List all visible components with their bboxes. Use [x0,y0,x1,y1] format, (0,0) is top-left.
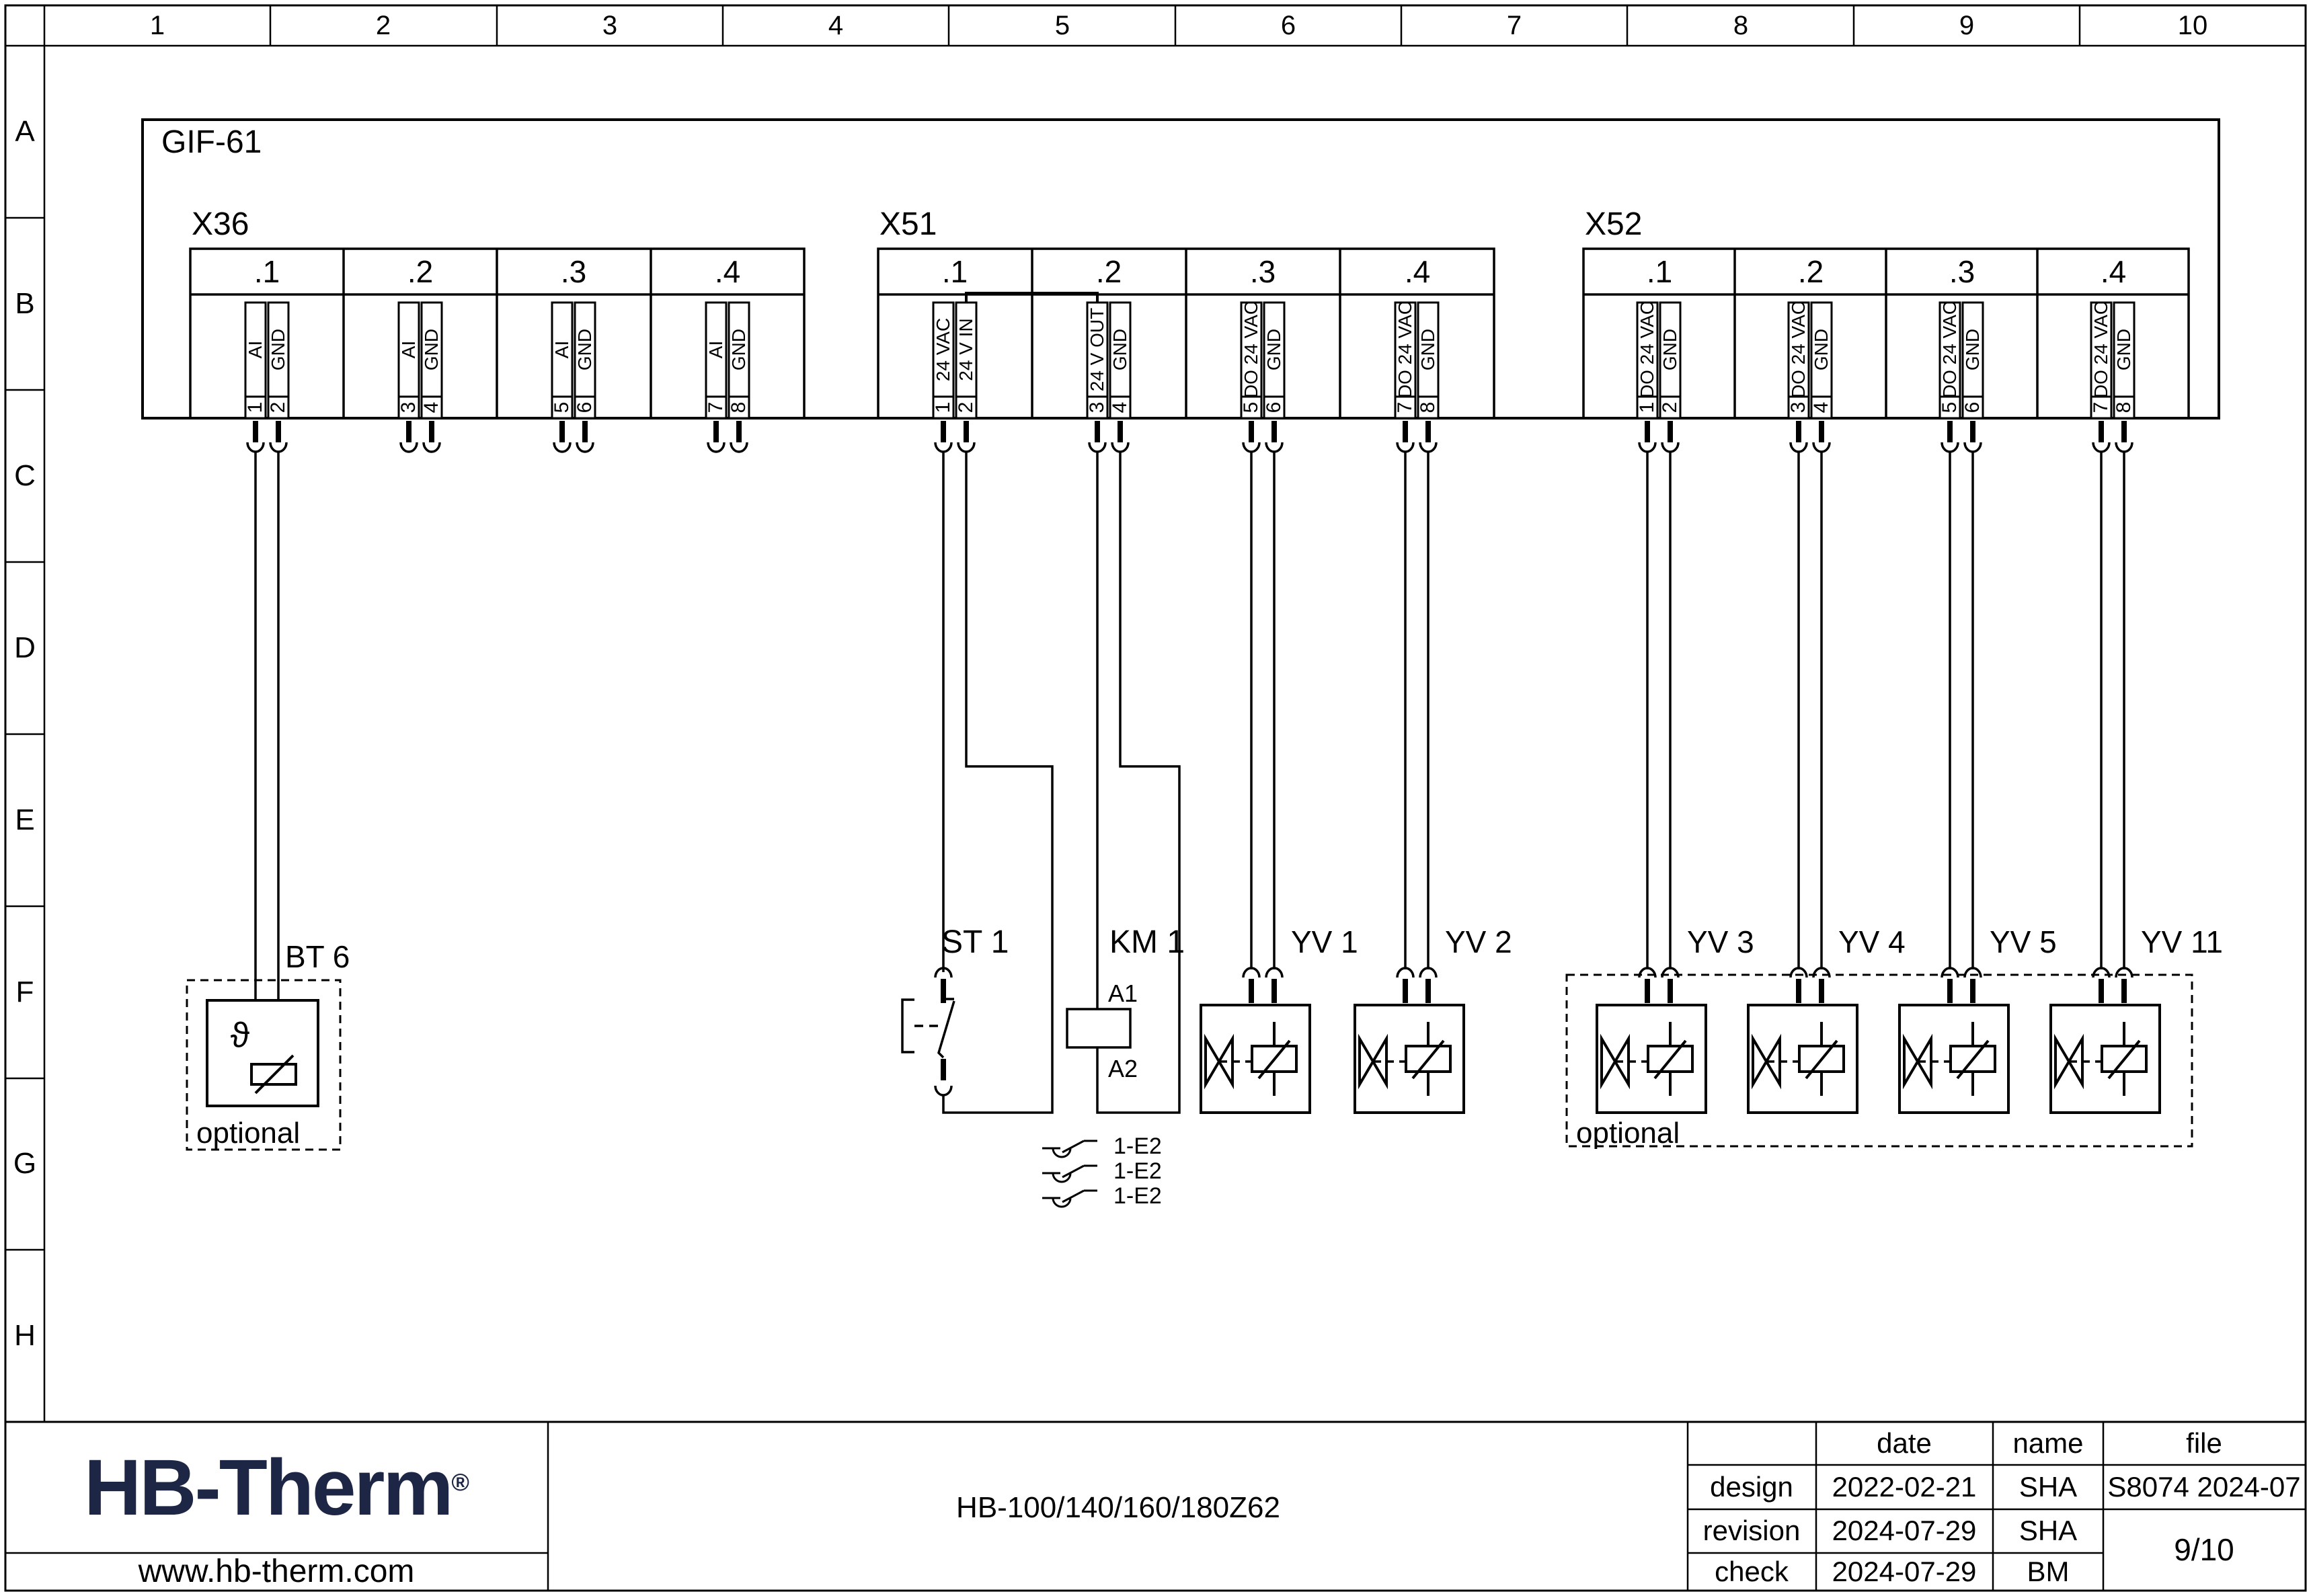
x36-pin1-name: AI [246,341,265,358]
x52-pin3-number: 3 [1789,402,1809,413]
table-header-file: file [2186,1429,2222,1458]
x36-pin7-name: AI [707,341,726,358]
row-revision-label: revision [1703,1517,1801,1545]
bt6-optional-label: optional [196,1119,300,1148]
x36-pin6-name: GND [576,329,594,370]
col-label-4: 4 [828,12,843,39]
pin-terminal-boxes [245,303,2134,418]
table-header-date: date [1877,1429,1932,1458]
yv3-label: YV 3 [1687,926,1754,957]
x52-pin1-number: 1 [1637,402,1657,413]
x51-pin8-number: 8 [1418,402,1438,413]
x51-pin1-name: 24 VAC [934,318,953,381]
x51-pin2-number: 2 [956,402,976,413]
table-header-name: name [2012,1429,2083,1458]
col-label-2: 2 [376,12,391,39]
gif61-module-box [143,120,2219,418]
x36-pin3-number: 3 [399,402,419,413]
x36-section-4: .4 [715,256,740,287]
x52-pin1-name: DO 24 VAC [1638,301,1657,398]
row-design-label: design [1710,1473,1793,1501]
row-label-b: B [15,289,34,319]
x51-pin6-number: 6 [1264,402,1284,413]
yv2-label: YV 2 [1445,926,1512,957]
row-design-name: SHA [2019,1473,2077,1501]
col-label-3: 3 [602,12,617,39]
x51-section-4: .4 [1405,256,1430,287]
x36-pin5-number: 5 [552,402,572,413]
x51-pin1-number: 1 [933,402,953,413]
x52-pin4-number: 4 [1811,402,1832,413]
wires [256,452,2124,1113]
row-label-h: H [14,1321,36,1351]
x51-pin6-name: GND [1265,329,1284,370]
company-website: www.hb-therm.com [139,1556,415,1588]
x36-pin8-number: 8 [729,402,749,413]
x51-pin4-number: 4 [1110,402,1130,413]
page-number: 9/10 [2174,1534,2234,1565]
file-value: S8074 2024-07 [2107,1473,2300,1501]
x52-pin7-name: DO 24 VAC [2092,301,2111,398]
x52-pin6-name: GND [1963,329,1982,370]
yv11-label: YV 11 [2141,926,2223,957]
x51-pin3-name: 24 V OUT [1088,308,1107,391]
contact-1-label: 1-E2 [1113,1135,1162,1158]
x52-section-2: .2 [1798,256,1824,287]
schematic-page: 1 2 3 4 5 6 7 8 9 10 A B C D E F G H GIF… [0,0,2311,1596]
x36-section-1: .1 [254,256,280,287]
x36-section-2: .2 [407,256,433,287]
x51-pin7-name: DO 24 VAC [1396,301,1415,398]
col-label-9: 9 [1959,12,1974,39]
row-check-name: BM [2027,1558,2070,1586]
contact-2-label: 1-E2 [1113,1160,1162,1183]
yv4-valve [1748,1005,1857,1113]
drawing-title: HB-100/140/160/180Z62 [956,1493,1280,1523]
x52-section-4: .4 [2101,256,2126,287]
x51-pin5-name: DO 24 VAC [1242,301,1261,398]
x52-pin8-name: GND [2115,329,2133,370]
x51-section-3: .3 [1250,256,1276,287]
x52-pin8-number: 8 [2114,402,2134,413]
col-label-5: 5 [1055,12,1070,39]
yv1-valve [1201,1005,1310,1113]
x36-pin2-name: GND [269,329,288,370]
st1-label: ST 1 [941,926,1009,959]
aux-contact-symbols [1042,1141,1097,1207]
km1-a1-label: A1 [1108,982,1138,1006]
yv4-label: YV 4 [1838,926,1906,957]
page-frame [5,5,2306,1591]
valve-symbols [1201,1005,2160,1113]
x51-pin3-number: 3 [1087,402,1107,413]
logo-text: HB-Therm [84,1442,451,1533]
x51-section-1: .1 [942,256,968,287]
yv3-valve [1597,1005,1706,1113]
connector-x51-label: X51 [879,208,937,241]
x52-pin6-number: 6 [1963,402,1983,413]
row-check-label: check [1715,1558,1789,1586]
x36-pin2-number: 2 [268,402,288,413]
x36-pin3-name: AI [399,341,418,358]
km1-a2-label: A2 [1108,1057,1138,1081]
x52-pin2-number: 2 [1660,402,1680,413]
logo-registered-mark: ® [451,1468,469,1497]
x52-pin2-name: GND [1661,329,1680,370]
row-label-f: F [16,977,34,1007]
yv-optional-label: optional [1576,1119,1680,1148]
yv2-valve [1355,1005,1464,1113]
x36-pin4-name: GND [422,329,441,370]
plug-socket-arcs [247,442,2132,452]
row-label-c: C [14,461,36,491]
col-label-8: 8 [1733,12,1748,39]
x52-section-3: .3 [1949,256,1975,287]
row-revision-date: 2024-07-29 [1832,1517,1977,1545]
row-label-d: D [14,633,36,663]
st1-switch-symbol [902,999,954,1058]
yv5-label: YV 5 [1990,926,2057,957]
km1-coil [1067,1009,1130,1047]
yv11-valve [2051,1005,2160,1113]
x51-pin8-name: GND [1419,329,1438,370]
x51-pin7-number: 7 [1395,402,1415,413]
x36-pin8-name: GND [730,329,748,370]
x36-pin6-number: 6 [575,402,595,413]
x52-pin3-name: DO 24 VAC [1789,301,1808,398]
company-logo: HB-Therm® [5,1422,548,1553]
plug-pin-bars [253,421,2127,442]
x36-pin7-number: 7 [706,402,726,413]
connector-x52-label: X52 [1585,208,1642,241]
col-label-10: 10 [2178,12,2208,39]
contact-3-label: 1-E2 [1113,1185,1162,1207]
x52-pin5-name: DO 24 VAC [1941,301,1959,398]
x36-pin4-number: 4 [422,402,442,413]
x36-section-3: .3 [561,256,586,287]
x51-section-2: .2 [1096,256,1122,287]
connector-x36-label: X36 [192,208,249,241]
col-label-6: 6 [1281,12,1296,39]
x52-pin4-name: GND [1812,329,1831,370]
x52-section-1: .1 [1647,256,1672,287]
yv1-label: YV 1 [1291,926,1358,957]
km1-label: KM 1 [1109,926,1185,959]
module-label: GIF-61 [161,126,262,159]
x52-pin7-number: 7 [2091,402,2111,413]
row-check-date: 2024-07-29 [1832,1558,1977,1586]
x36-pin5-name: AI [553,341,572,358]
row-revision-name: SHA [2019,1517,2077,1545]
x51-pin2-name: 24 V IN [957,318,976,381]
row-label-e: E [15,805,34,835]
theta-symbol: ϑ [231,1018,249,1053]
schematic-drawing [0,0,2311,1596]
col-label-1: 1 [150,12,165,39]
x51-pin5-number: 5 [1241,402,1261,413]
row-design-date: 2022-02-21 [1832,1473,1977,1501]
x52-pin5-number: 5 [1940,402,1960,413]
col-label-7: 7 [1507,12,1522,39]
row-label-a: A [15,117,34,147]
row-label-g: G [13,1149,36,1179]
bt6-label: BT 6 [285,941,350,972]
x51-pin4-name: GND [1111,329,1130,370]
yv5-valve [1899,1005,2008,1113]
x36-pin1-number: 1 [245,402,266,413]
